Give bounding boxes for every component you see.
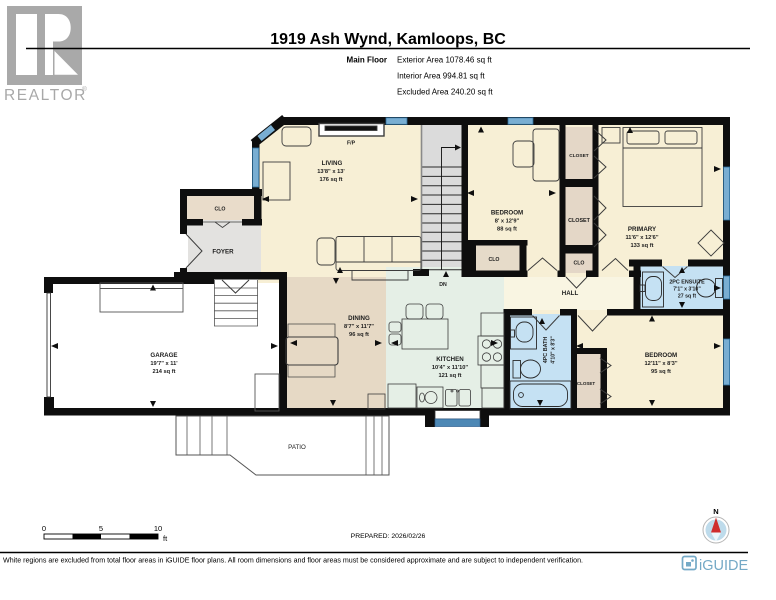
svg-text:95 sq ft: 95 sq ft [651, 369, 671, 375]
svg-text:Main Floor: Main Floor [347, 56, 387, 65]
svg-text:BEDROOM: BEDROOM [645, 352, 677, 359]
svg-text:Excluded Area 240.20 sq ft: Excluded Area 240.20 sq ft [397, 88, 493, 97]
svg-text:PRIMARY: PRIMARY [628, 226, 657, 233]
svg-text:DINING: DINING [348, 315, 370, 322]
svg-text:CLOSET: CLOSET [569, 153, 589, 159]
svg-text:CLOSET: CLOSET [577, 381, 596, 386]
svg-text:CLOSET: CLOSET [568, 218, 591, 224]
svg-text:88 sq ft: 88 sq ft [497, 227, 517, 233]
svg-text:10: 10 [154, 524, 162, 533]
svg-text:121 sq ft: 121 sq ft [438, 373, 461, 379]
svg-text:®: ® [82, 85, 87, 93]
svg-text:DN: DN [439, 282, 447, 288]
svg-text:19'7" x 11': 19'7" x 11' [150, 361, 178, 367]
svg-text:7'1" x 3'10": 7'1" x 3'10" [673, 287, 701, 293]
svg-text:13'8" x 13': 13'8" x 13' [317, 169, 345, 175]
svg-text:4PC BATH: 4PC BATH [543, 337, 549, 364]
svg-text:214 sq ft: 214 sq ft [152, 369, 175, 375]
svg-text:27 sq ft: 27 sq ft [678, 294, 696, 300]
svg-text:BEDROOM: BEDROOM [491, 210, 523, 217]
svg-text:REALTOR: REALTOR [4, 87, 87, 104]
svg-text:176 sq ft: 176 sq ft [319, 177, 342, 183]
svg-text:CLO: CLO [215, 207, 226, 213]
svg-text:Exterior Area 1078.46 sq ft: Exterior Area 1078.46 sq ft [397, 56, 493, 65]
svg-text:FOYER: FOYER [212, 249, 234, 256]
svg-text:LIVING: LIVING [322, 160, 343, 167]
svg-text:White regions are excluded fro: White regions are excluded from total fl… [3, 557, 583, 565]
svg-text:11'6" x 12'6": 11'6" x 12'6" [625, 235, 658, 241]
svg-text:GARAGE: GARAGE [150, 352, 177, 359]
svg-text:1919 Ash Wynd, Kamloops, BC: 1919 Ash Wynd, Kamloops, BC [270, 31, 506, 48]
svg-text:8'7" x 11'7": 8'7" x 11'7" [344, 324, 374, 330]
svg-text:133 sq ft: 133 sq ft [630, 243, 653, 249]
svg-text:F/P: F/P [347, 141, 356, 147]
svg-text:CLO: CLO [489, 257, 500, 263]
svg-text:0: 0 [42, 524, 46, 533]
svg-text:96 sq ft: 96 sq ft [349, 332, 369, 338]
svg-text:Interior Area 994.81 sq ft: Interior Area 994.81 sq ft [397, 72, 485, 81]
svg-text:PATIO: PATIO [288, 444, 306, 451]
svg-text:PREPARED: 2026/02/26: PREPARED: 2026/02/26 [351, 533, 426, 540]
svg-text:8' x 12'9": 8' x 12'9" [495, 219, 520, 225]
svg-text:10'4" x 11'10": 10'4" x 11'10" [432, 365, 469, 371]
svg-text:CLO: CLO [574, 261, 585, 267]
svg-text:5: 5 [99, 524, 103, 533]
svg-text:HALL: HALL [562, 290, 579, 297]
svg-text:iGUIDE: iGUIDE [699, 558, 748, 574]
svg-text:2PC ENSUITE: 2PC ENSUITE [669, 280, 705, 286]
svg-text:N: N [713, 507, 718, 516]
svg-text:KITCHEN: KITCHEN [436, 356, 464, 363]
svg-text:12'11" x 8'3": 12'11" x 8'3" [644, 361, 677, 367]
svg-text:4'10" x 8'3": 4'10" x 8'3" [551, 336, 557, 364]
